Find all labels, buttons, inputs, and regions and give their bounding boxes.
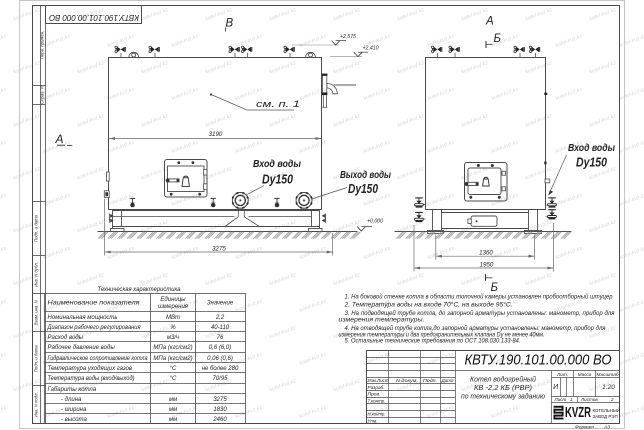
svg-text:kotel-kvz.kz: kotel-kvz.kz <box>171 87 200 102</box>
svg-text:КВТУ.190.101.00.000 ВО: КВТУ.190.101.00.000 ВО <box>48 13 139 22</box>
svg-text:kotel-kvz.kz: kotel-kvz.kz <box>619 193 644 208</box>
svg-text:°С: °С <box>170 366 177 372</box>
svg-text:Подп. и дата: Подп. и дата <box>34 214 39 242</box>
svg-text:Значение: Значение <box>207 301 234 307</box>
svg-text:измерения: измерения <box>158 304 189 310</box>
svg-text:Dy150: Dy150 <box>348 182 378 196</box>
svg-text:kotel-kvz.kz: kotel-kvz.kz <box>205 60 234 75</box>
svg-text:kotel-kvz.kz: kotel-kvz.kz <box>141 325 170 340</box>
svg-text:МПа (кгс/см2): МПа (кгс/см2) <box>153 345 192 351</box>
svg-text:Б: Б <box>491 282 499 294</box>
svg-text:kotel-kvz.kz: kotel-kvz.kz <box>299 34 328 49</box>
svg-text:kotel-kvz.kz: kotel-kvz.kz <box>619 246 644 261</box>
svg-text:kotel-kvz.kz: kotel-kvz.kz <box>13 7 42 22</box>
svg-text:kotel-kvz.kz: kotel-kvz.kz <box>141 7 170 22</box>
svg-text:1: 1 <box>570 397 573 402</box>
svg-text:kotel-kvz.kz: kotel-kvz.kz <box>77 113 106 128</box>
svg-text:N докум.: N докум. <box>396 378 418 383</box>
svg-text:kotel-kvz.kz: kotel-kvz.kz <box>525 7 554 22</box>
svg-text:kotel-kvz.kz: kotel-kvz.kz <box>427 352 456 367</box>
svg-text:kotel-kvz.kz: kotel-kvz.kz <box>525 272 554 287</box>
svg-text:kotel-kvz.kz: kotel-kvz.kz <box>107 34 136 49</box>
svg-text:Масштаб: Масштаб <box>597 372 619 377</box>
svg-text:kotel-kvz.kz: kotel-kvz.kz <box>205 166 234 181</box>
svg-text:Разраб.: Разраб. <box>368 385 385 390</box>
svg-text:kotel-kvz.kz: kotel-kvz.kz <box>555 34 584 49</box>
svg-text:Подп.: Подп. <box>423 378 437 383</box>
svg-text:+2.575: +2.575 <box>340 34 356 40</box>
svg-text:Рабочее давление воды: Рабочее давление воды <box>48 345 116 351</box>
svg-text:kotel-kvz.kz: kotel-kvz.kz <box>107 405 136 420</box>
svg-text:kotel-kvz.kz: kotel-kvz.kz <box>235 405 264 420</box>
svg-text:kotel-kvz.kz: kotel-kvz.kz <box>299 140 328 155</box>
svg-text:kotel-kvz.kz: kotel-kvz.kz <box>107 140 136 155</box>
svg-text:kotel-kvz.kz: kotel-kvz.kz <box>235 34 264 49</box>
svg-text:2,2: 2,2 <box>215 315 225 321</box>
svg-text:kotel-kvz.kz: kotel-kvz.kz <box>13 325 42 340</box>
svg-text:Инв. N дубл.: Инв. N дубл. <box>34 262 39 287</box>
svg-text:kotel-kvz.kz: kotel-kvz.kz <box>171 34 200 49</box>
svg-text:kotel-kvz.kz: kotel-kvz.kz <box>0 193 7 208</box>
svg-text:0,06 (0,6): 0,06 (0,6) <box>207 356 233 362</box>
svg-text:Единицы: Единицы <box>160 297 186 303</box>
svg-text:Перв. примен.: Перв. примен. <box>40 31 45 60</box>
svg-text:Масса: Масса <box>578 372 592 377</box>
svg-text:Техническая характеристика: Техническая характеристика <box>98 286 181 293</box>
svg-text:не более 280: не более 280 <box>202 366 239 372</box>
svg-text:kotel-kvz.kz: kotel-kvz.kz <box>0 140 7 155</box>
svg-text:kotel-kvz.kz: kotel-kvz.kz <box>235 140 264 155</box>
svg-text:2460: 2460 <box>212 417 227 423</box>
svg-text:- длина: - длина <box>61 397 82 403</box>
svg-text:Гидравлическое сопротивление к: Гидравлическое сопротивление котла <box>48 356 149 362</box>
svg-text:kotel-kvz.kz: kotel-kvz.kz <box>619 140 644 155</box>
svg-text:kotel-kvz.kz: kotel-kvz.kz <box>589 60 618 75</box>
svg-text:kotel-kvz.kz: kotel-kvz.kz <box>43 193 72 208</box>
svg-text:kotel-kvz.kz: kotel-kvz.kz <box>43 87 72 102</box>
svg-text:kotel-kvz.kz: kotel-kvz.kz <box>525 113 554 128</box>
svg-text:kotel-kvz.kz: kotel-kvz.kz <box>363 246 392 261</box>
svg-text:ЗАВОД РЭП: ЗАВОД РЭП <box>593 414 618 419</box>
svg-text:Листов: Листов <box>580 397 598 402</box>
svg-text:kotel-kvz.kz: kotel-kvz.kz <box>461 60 490 75</box>
svg-text:kotel-kvz.kz: kotel-kvz.kz <box>555 246 584 261</box>
svg-text:В: В <box>226 18 234 30</box>
svg-text:Лист: Лист <box>554 397 567 402</box>
svg-text:Справ. N: Справ. N <box>40 85 45 104</box>
svg-text:3275: 3275 <box>212 245 226 252</box>
svg-text:Лит.: Лит. <box>556 372 568 377</box>
svg-text:kotel-kvz.kz: kotel-kvz.kz <box>235 246 264 261</box>
svg-text:kotel-kvz.kz: kotel-kvz.kz <box>619 299 644 314</box>
svg-text:- ширина: - ширина <box>61 407 87 413</box>
svg-text:kotel-kvz.kz: kotel-kvz.kz <box>77 60 106 75</box>
svg-text:2: 2 <box>610 397 614 402</box>
svg-text:см. п. 1: см. п. 1 <box>256 99 300 109</box>
svg-text:Номинальная мощность: Номинальная мощность <box>48 315 118 321</box>
svg-text:kotel-kvz.kz: kotel-kvz.kz <box>333 378 362 393</box>
svg-text:kotel-kvz.kz: kotel-kvz.kz <box>269 378 298 393</box>
svg-text:kotel-kvz.kz: kotel-kvz.kz <box>299 405 328 420</box>
svg-text:Утв.: Утв. <box>368 418 378 423</box>
svg-text:kotel-kvz.kz: kotel-kvz.kz <box>269 113 298 128</box>
svg-text:Подп. и дата: Подп. и дата <box>34 345 39 373</box>
svg-text:kotel-kvz.kz: kotel-kvz.kz <box>491 87 520 102</box>
svg-text:3190: 3190 <box>209 131 223 138</box>
svg-text:kotel-kvz.kz: kotel-kvz.kz <box>525 60 554 75</box>
svg-text:Инв. N подл.: Инв. N подл. <box>34 392 39 417</box>
svg-text:+2.410: +2.410 <box>363 46 379 52</box>
svg-text:1950: 1950 <box>480 261 494 268</box>
svg-text:KVZR: KVZR <box>565 404 591 421</box>
svg-text:kotel-kvz.kz: kotel-kvz.kz <box>43 34 72 49</box>
svg-text:kotel-kvz.kz: kotel-kvz.kz <box>589 113 618 128</box>
svg-text:kotel-kvz.kz: kotel-kvz.kz <box>107 246 136 261</box>
svg-text:Вход воды: Вход воды <box>253 159 301 170</box>
svg-text:kotel-kvz.kz: kotel-kvz.kz <box>333 113 362 128</box>
svg-text:Дата: Дата <box>441 378 454 383</box>
svg-text:kotel-kvz.kz: kotel-kvz.kz <box>269 7 298 22</box>
svg-text:Температура уходящих газов: Температура уходящих газов <box>48 366 133 372</box>
svg-text:Расход воды: Расход воды <box>48 335 84 341</box>
svg-text:kotel-kvz.kz: kotel-kvz.kz <box>619 352 644 367</box>
svg-text:kotel-kvz.kz: kotel-kvz.kz <box>141 113 170 128</box>
svg-text:kotel-kvz.kz: kotel-kvz.kz <box>13 166 42 181</box>
svg-text:2. Температура воды на входе: 2. Температура воды на входе 70°С, на вы… <box>343 302 512 309</box>
svg-text:kotel-kvz.kz: kotel-kvz.kz <box>555 87 584 102</box>
svg-text:kotel-kvz.kz: kotel-kvz.kz <box>77 219 106 234</box>
svg-text:kotel-kvz.kz: kotel-kvz.kz <box>427 87 456 102</box>
svg-text:1360: 1360 <box>479 250 493 257</box>
svg-text:kotel-kvz.kz: kotel-kvz.kz <box>171 193 200 208</box>
svg-text:kotel-kvz.kz: kotel-kvz.kz <box>333 60 362 75</box>
svg-text:Котел водогрейный: Котел водогрейный <box>470 376 536 384</box>
svg-text:kotel-kvz.kz: kotel-kvz.kz <box>555 193 584 208</box>
svg-text:kotel-kvz.kz: kotel-kvz.kz <box>269 272 298 287</box>
svg-text:1:20: 1:20 <box>602 384 615 391</box>
svg-text:kotel-kvz.kz: kotel-kvz.kz <box>171 140 200 155</box>
svg-text:kotel-kvz.kz: kotel-kvz.kz <box>0 299 7 314</box>
svg-text:Наименование показателя: Наименование показателя <box>48 301 141 307</box>
svg-text:мм: мм <box>169 417 177 423</box>
svg-text:kotel-kvz.kz: kotel-kvz.kz <box>427 140 456 155</box>
svg-text:kotel-kvz.kz: kotel-kvz.kz <box>0 246 7 261</box>
svg-text:МПа (кгс/см2): МПа (кгс/см2) <box>153 356 192 362</box>
svg-text:Б: Б <box>494 33 502 45</box>
svg-text:kotel-kvz.kz: kotel-kvz.kz <box>333 272 362 287</box>
svg-text:kotel-kvz.kz: kotel-kvz.kz <box>205 272 234 287</box>
svg-text:А3: А3 <box>603 424 610 430</box>
svg-text:А: А <box>485 16 494 28</box>
svg-text:kotel-kvz.kz: kotel-kvz.kz <box>397 7 426 22</box>
svg-text:Вход воды: Вход воды <box>568 143 615 154</box>
svg-text:КВ -2,2 КБ (РВР): КВ -2,2 КБ (РВР) <box>474 385 532 392</box>
svg-text:kotel-kvz.kz: kotel-kvz.kz <box>0 352 7 367</box>
svg-text:kotel-kvz.kz: kotel-kvz.kz <box>13 113 42 128</box>
svg-text:Габариты котла: Габариты котла <box>48 387 97 393</box>
svg-text:kotel-kvz.kz: kotel-kvz.kz <box>397 60 426 75</box>
svg-text:kotel-kvz.kz: kotel-kvz.kz <box>619 87 644 102</box>
svg-text:%: % <box>170 325 176 331</box>
svg-text:м3/ч: м3/ч <box>167 335 179 341</box>
svg-text:kotel-kvz.kz: kotel-kvz.kz <box>13 60 42 75</box>
svg-text:kotel-kvz.kz: kotel-kvz.kz <box>589 272 618 287</box>
svg-text:kotel-kvz.kz: kotel-kvz.kz <box>0 87 7 102</box>
svg-text:А: А <box>55 132 64 146</box>
svg-text:Выход воды: Выход воды <box>340 170 391 181</box>
svg-text:Диапазон рабочего регулировани: Диапазон рабочего регулирования <box>47 325 142 331</box>
svg-text:kotel-kvz.kz: kotel-kvz.kz <box>619 405 644 420</box>
svg-text:3275: 3275 <box>213 397 227 403</box>
svg-text:Т.контр.: Т.контр. <box>368 398 386 403</box>
svg-text:kotel-kvz.kz: kotel-kvz.kz <box>427 246 456 261</box>
svg-text:kotel-kvz.kz: kotel-kvz.kz <box>299 299 328 314</box>
svg-text:Н.контр.: Н.контр. <box>368 412 386 417</box>
svg-text:Dy150: Dy150 <box>576 156 607 170</box>
svg-text:по техническому заданию: по техническому заданию <box>461 393 546 401</box>
svg-text:1830: 1830 <box>213 407 227 413</box>
svg-text:+0.000: +0.000 <box>367 219 383 225</box>
svg-text:Dy150: Dy150 <box>262 173 293 187</box>
svg-text:kotel-kvz.kz: kotel-kvz.kz <box>363 140 392 155</box>
svg-text:kotel-kvz.kz: kotel-kvz.kz <box>397 113 426 128</box>
svg-text:kotel-kvz.kz: kotel-kvz.kz <box>269 60 298 75</box>
svg-text:kotel-kvz.kz: kotel-kvz.kz <box>299 246 328 261</box>
svg-text:Изм.Лист: Изм.Лист <box>368 378 389 383</box>
svg-text:kotel-kvz.kz: kotel-kvz.kz <box>491 140 520 155</box>
svg-text:МВт: МВт <box>166 315 180 321</box>
svg-text:Формат: Формат <box>575 424 594 430</box>
svg-text:измерения температуры.: измерения температуры. <box>339 316 425 323</box>
svg-text:kotel-kvz.kz: kotel-kvz.kz <box>141 166 170 181</box>
svg-text:kotel-kvz.kz: kotel-kvz.kz <box>589 219 618 234</box>
svg-text:kotel-kvz.kz: kotel-kvz.kz <box>205 113 234 128</box>
svg-text:0,6 (6,0): 0,6 (6,0) <box>209 345 231 351</box>
svg-text:kotel-kvz.kz: kotel-kvz.kz <box>491 246 520 261</box>
svg-text:Пров.: Пров. <box>368 392 381 397</box>
svg-text:мм: мм <box>169 397 177 403</box>
svg-text:kotel-kvz.kz: kotel-kvz.kz <box>619 34 644 49</box>
svg-text:kotel-kvz.kz: kotel-kvz.kz <box>333 7 362 22</box>
svg-text:40-110: 40-110 <box>211 325 230 331</box>
svg-text:kotel-kvz.kz: kotel-kvz.kz <box>491 405 520 420</box>
svg-text:kotel-kvz.kz: kotel-kvz.kz <box>269 325 298 340</box>
svg-text:5. Остальные технические треб: 5. Остальные технические требования по О… <box>345 338 521 345</box>
svg-text:мм: мм <box>169 407 177 413</box>
svg-text:Температура воды (вход/выход): Температура воды (вход/выход) <box>48 376 135 382</box>
svg-text:°С: °С <box>170 376 177 382</box>
svg-text:kotel-kvz.kz: kotel-kvz.kz <box>0 34 7 49</box>
svg-text:kotel-kvz.kz: kotel-kvz.kz <box>397 272 426 287</box>
svg-text:1. На боковой стенке котла в: 1. На боковой стенке котла в области топ… <box>345 294 614 301</box>
svg-text:kotel-kvz.kz: kotel-kvz.kz <box>43 246 72 261</box>
svg-text:- высота: - высота <box>61 417 87 423</box>
svg-text:kotel-kvz.kz: kotel-kvz.kz <box>0 405 7 420</box>
svg-text:kotel-kvz.kz: kotel-kvz.kz <box>299 352 328 367</box>
svg-text:kotel-kvz.kz: kotel-kvz.kz <box>589 7 618 22</box>
svg-text:kotel-kvz.kz: kotel-kvz.kz <box>427 193 456 208</box>
svg-text:kotel-kvz.kz: kotel-kvz.kz <box>397 166 426 181</box>
svg-text:kotel-kvz.kz: kotel-kvz.kz <box>363 87 392 102</box>
svg-text:76: 76 <box>217 335 224 341</box>
svg-text:70/95: 70/95 <box>212 376 228 382</box>
svg-text:kotel-kvz.kz: kotel-kvz.kz <box>77 166 106 181</box>
svg-text:kotel-kvz.kz: kotel-kvz.kz <box>171 246 200 261</box>
svg-text:kotel-kvz.kz: kotel-kvz.kz <box>141 60 170 75</box>
svg-text:КОТЕЛЬНЫЙ: КОТЕЛЬНЫЙ <box>593 408 621 413</box>
svg-text:kotel-kvz.kz: kotel-kvz.kz <box>141 378 170 393</box>
svg-text:kotel-kvz.kz: kotel-kvz.kz <box>235 352 264 367</box>
svg-text:kotel-kvz.kz: kotel-kvz.kz <box>461 113 490 128</box>
svg-text:kotel-kvz.kz: kotel-kvz.kz <box>107 87 136 102</box>
svg-text:И: И <box>553 384 559 391</box>
svg-text:Взам. инв. N: Взам. инв. N <box>34 299 39 325</box>
svg-text:КВТУ.190.101.00.000 ВО: КВТУ.190.101.00.000 ВО <box>465 352 612 369</box>
